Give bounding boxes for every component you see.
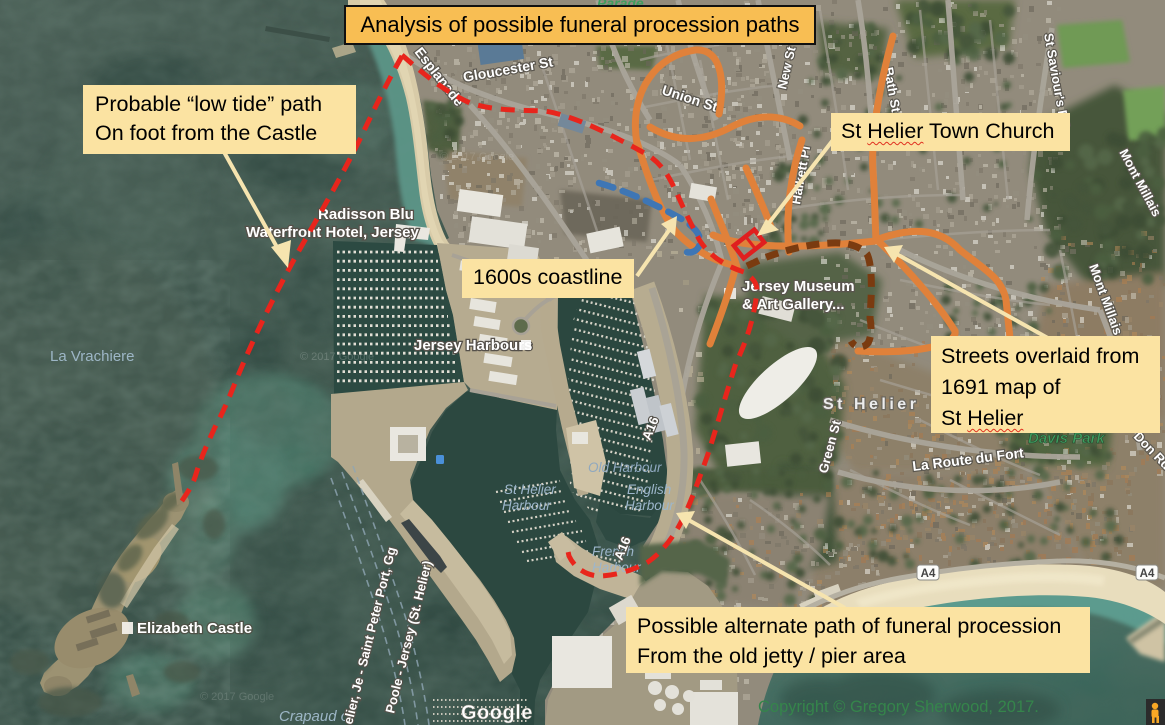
svg-text:Harbour: Harbour xyxy=(502,498,551,513)
svg-text:Google: Google xyxy=(461,702,533,724)
svg-text:Jersey Harbours: Jersey Harbours xyxy=(414,337,532,354)
svg-text:A4: A4 xyxy=(1140,568,1155,580)
svg-text:St Helier: St Helier xyxy=(504,482,556,497)
svg-text:A4: A4 xyxy=(921,568,936,580)
svg-text:Elizabeth Castle: Elizabeth Castle xyxy=(137,620,252,637)
svg-text:St Helier: St Helier xyxy=(823,396,919,413)
svg-text:© 2017 Google: © 2017 Google xyxy=(440,151,514,163)
svg-text:La Vrachiere: La Vrachiere xyxy=(50,348,135,365)
svg-text:© 2017 Google: © 2017 Google xyxy=(200,691,274,703)
svg-text:English: English xyxy=(627,482,671,497)
svg-text:Old Harbour: Old Harbour xyxy=(588,460,662,475)
svg-text:Harbour: Harbour xyxy=(625,498,674,513)
svg-text:Radisson Blu: Radisson Blu xyxy=(318,206,414,223)
svg-text:© 2017 Google: © 2017 Google xyxy=(300,351,374,363)
